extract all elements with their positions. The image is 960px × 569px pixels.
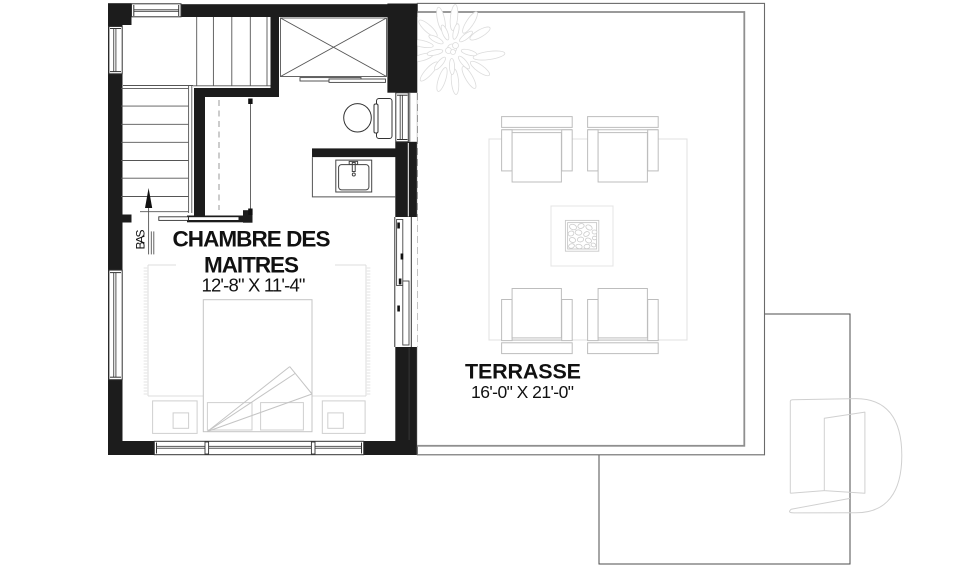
svg-text:CHAMBRE DES: CHAMBRE DES: [173, 227, 331, 252]
svg-text:16'-0" X 21'-0": 16'-0" X 21'-0": [471, 382, 574, 402]
svg-text:TERRASSE: TERRASSE: [465, 359, 581, 383]
svg-text:12'-8" X 11'-4": 12'-8" X 11'-4": [202, 275, 306, 296]
svg-text:BAS: BAS: [134, 230, 148, 250]
